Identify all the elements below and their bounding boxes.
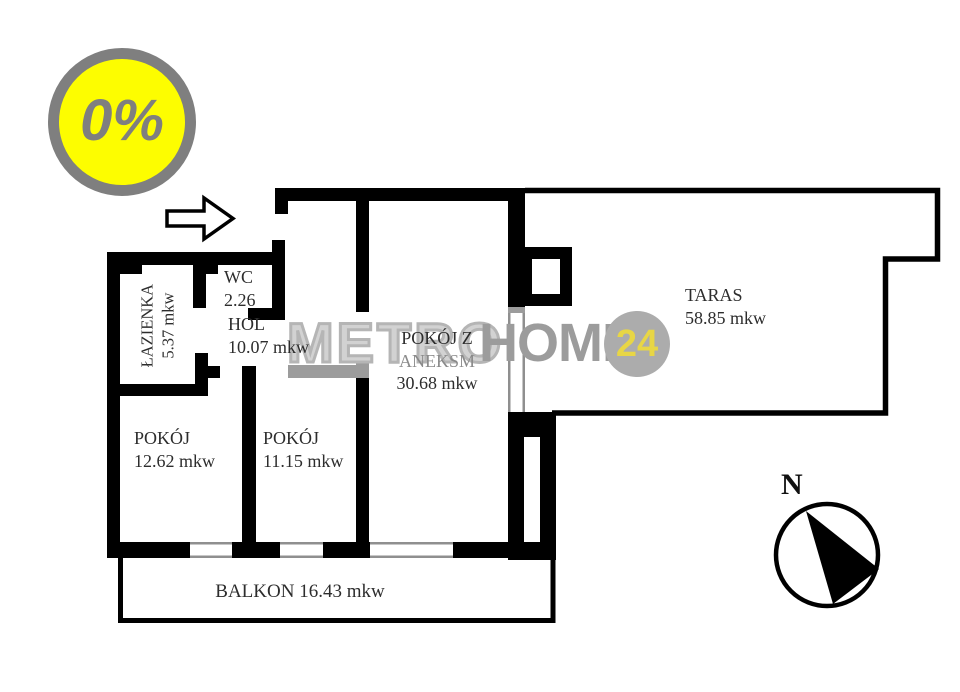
wall-bath-top — [107, 252, 282, 265]
wall-rooms-divider — [242, 366, 256, 543]
room-area: 30.68 mkw — [372, 372, 502, 395]
entrance-arrow-icon — [167, 198, 233, 239]
label-wc: WC 2.26 — [224, 266, 256, 311]
room-area: 5.37 mkw — [158, 266, 179, 386]
room-name: TARAS — [685, 285, 743, 305]
label-taras: TARAS 58.85 mkw — [685, 284, 766, 329]
room-name: ŁAZIENKA — [137, 284, 156, 367]
wall-hall-aneks-lower — [356, 378, 369, 543]
wall-hall-stub — [208, 366, 220, 378]
room-area: 2.26 — [224, 289, 256, 312]
room-name-line2: ANEKSM — [372, 350, 502, 373]
compass-icon — [776, 504, 879, 606]
label-pokoj-2: POKÓJ 11.15 mkw — [263, 427, 343, 472]
label-lazienka: ŁAZIENKA 5.37 mkw — [137, 266, 178, 386]
room-area: 11.15 mkw — [263, 450, 343, 473]
room-name: HOL — [228, 314, 265, 334]
watermark-24-badge: 24 — [604, 311, 670, 377]
room-area: 10.07 mkw — [228, 336, 309, 359]
wall-bath-bottom — [107, 384, 202, 396]
floor-plan-page: METRO HOME 24 ŁAZIENKA 5.37 mkw WC 2.26 … — [0, 0, 960, 692]
wall-doorframe-b — [205, 265, 218, 274]
label-hol: HOL 10.07 mkw — [228, 313, 309, 358]
watermark-24-label: 24 — [616, 323, 658, 366]
zero-percent-badge: 0% — [48, 48, 196, 196]
room-name: POKÓJ — [134, 428, 190, 448]
room-name: POKÓJ — [263, 428, 319, 448]
compass-north-label: N — [781, 468, 803, 502]
room-name: WC — [224, 267, 253, 287]
wall-left — [107, 252, 120, 558]
window-bay-inner — [532, 259, 560, 294]
wall-entrance-stub — [275, 188, 288, 214]
wall-hall-aneks-upper — [356, 188, 369, 312]
label-pokoj-1: POKÓJ 12.62 mkw — [134, 427, 215, 472]
side-window-slot — [524, 437, 540, 542]
room-area: 12.62 mkw — [134, 450, 215, 473]
wall-top — [275, 188, 525, 201]
room-area: 58.85 mkw — [685, 307, 766, 330]
zero-percent-label: 0% — [80, 87, 164, 154]
room-name-line1: POKÓJ Z — [401, 328, 473, 348]
room-name: BALKON 16.43 mkw — [215, 581, 384, 602]
label-pokoj-z-aneksem: POKÓJ Z ANEKSM 30.68 mkw — [372, 327, 502, 395]
label-balkon: BALKON 16.43 mkw — [175, 580, 425, 604]
wall-bath-wc-divider — [193, 265, 206, 308]
